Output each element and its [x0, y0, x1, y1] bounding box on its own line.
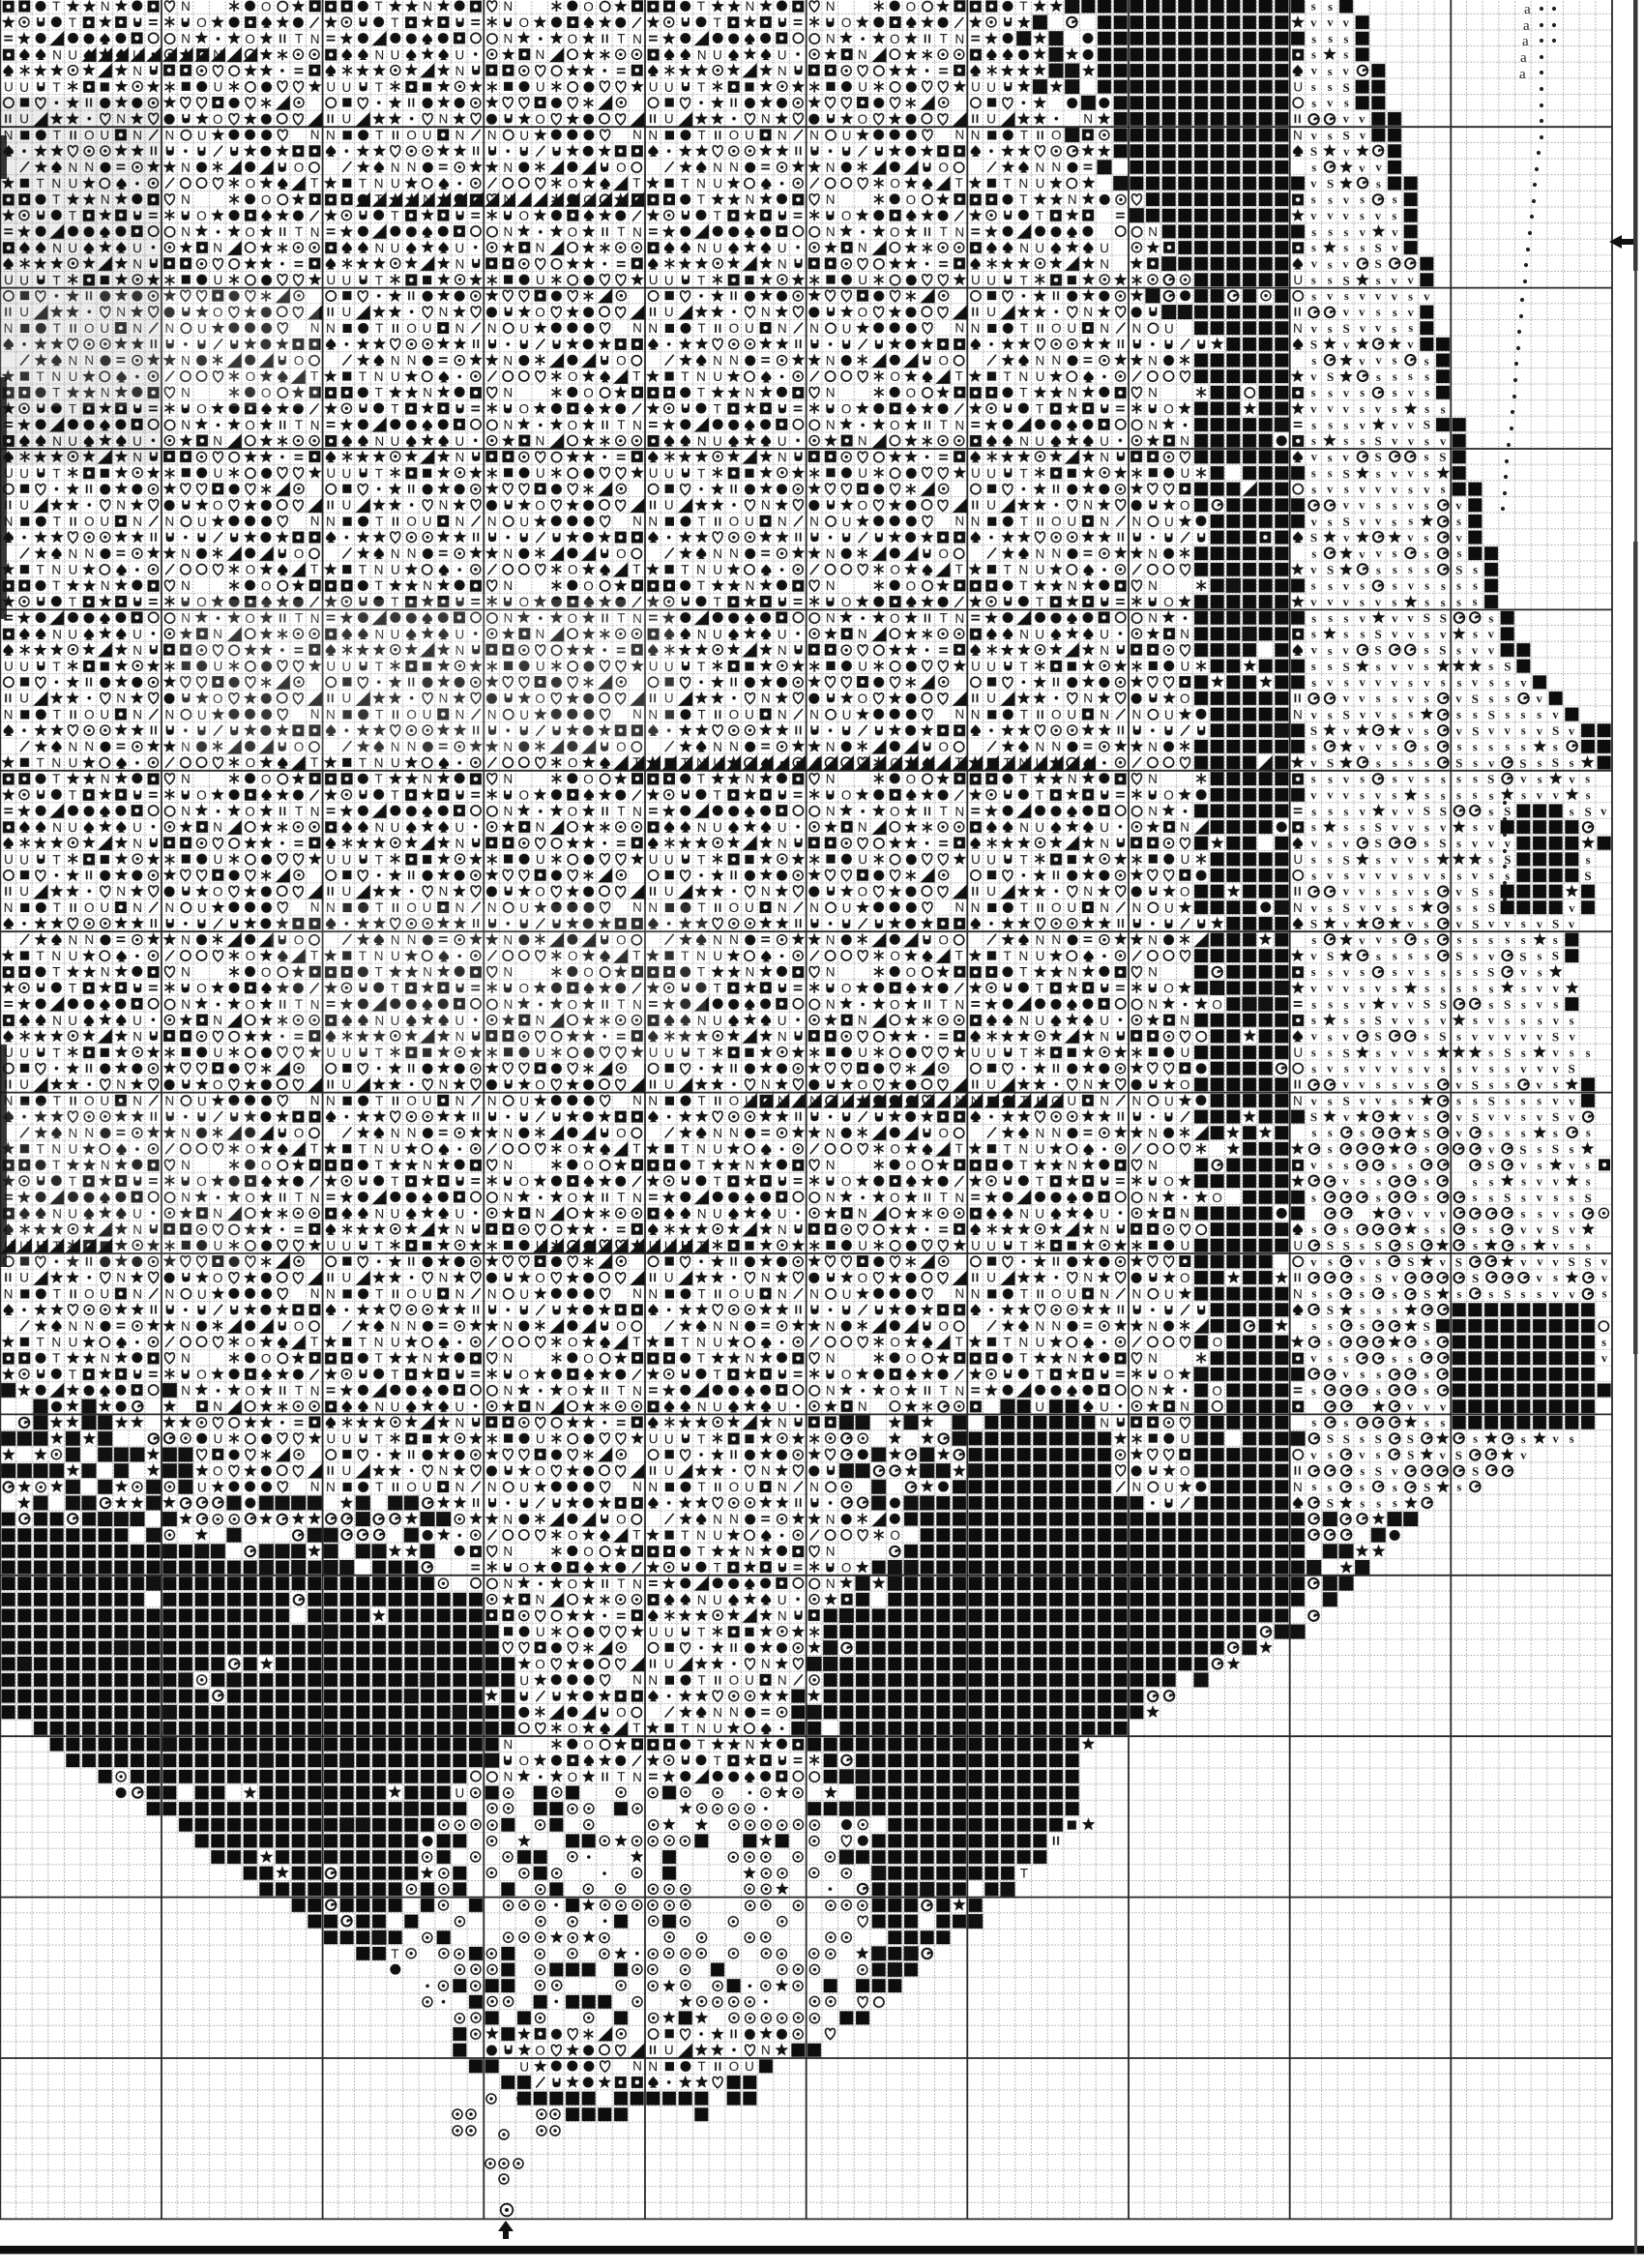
svg-text:a: a — [1523, 18, 1530, 34]
svg-text:a: a — [1522, 34, 1529, 49]
svg-text:a: a — [1519, 67, 1526, 82]
svg-text:a: a — [1524, 2, 1531, 17]
svg-text:a: a — [1520, 50, 1527, 66]
